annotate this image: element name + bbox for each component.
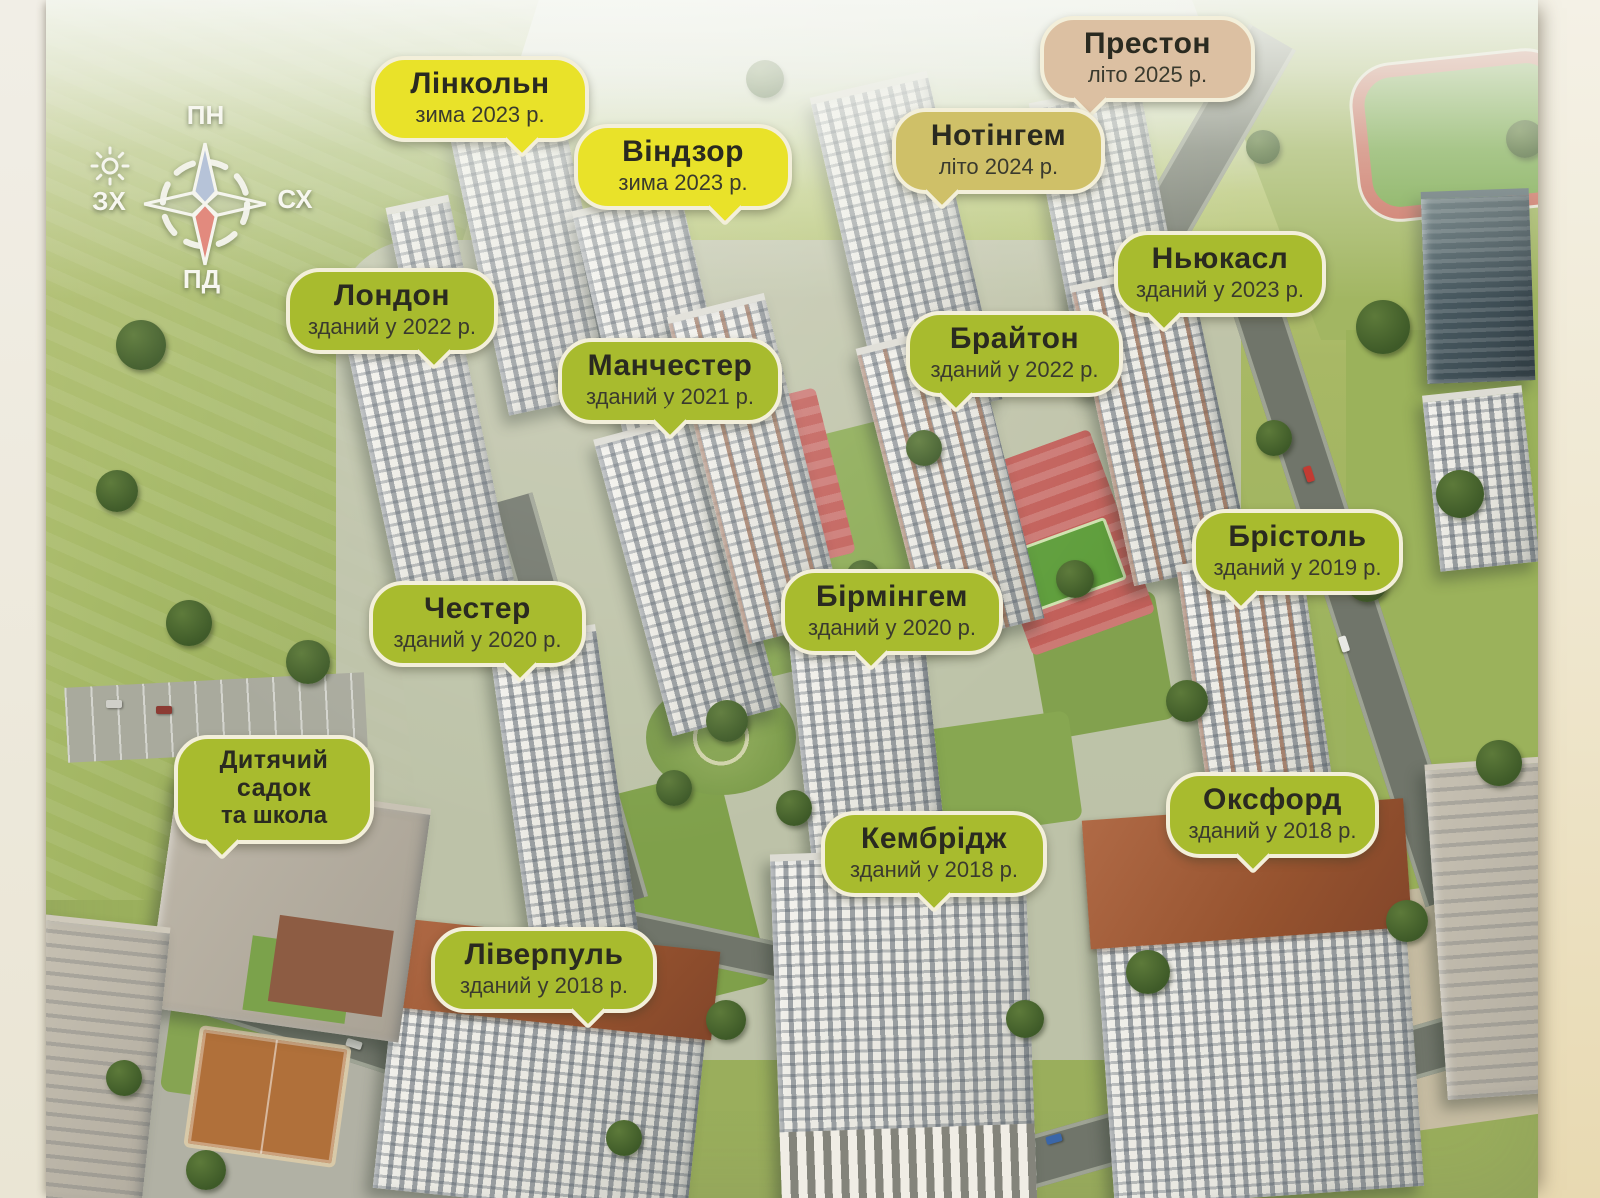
- tree: [186, 1150, 226, 1190]
- completion-date: зданий у 2021 р.: [578, 383, 762, 411]
- tree: [906, 430, 942, 466]
- tree: [166, 600, 212, 646]
- building-name-line2: та школа: [194, 802, 354, 830]
- tree: [1056, 560, 1094, 598]
- building-name: Лінкольн: [391, 67, 569, 101]
- callout-manchester: Манчестер зданий у 2021 р.: [558, 338, 782, 424]
- callout-notingem: Нотінгем літо 2024 р.: [892, 108, 1105, 194]
- car: [106, 700, 122, 708]
- tree: [1356, 300, 1410, 354]
- tree: [706, 1000, 746, 1040]
- tree: [1246, 130, 1280, 164]
- building-name: Ньюкасл: [1134, 242, 1306, 276]
- building-name: Кембрідж: [841, 822, 1027, 856]
- completion-date: зданий у 2020 р.: [801, 614, 983, 642]
- compass-rose: [143, 142, 267, 266]
- compass-south-label: ПД: [159, 264, 244, 295]
- callout-niukasl: Ньюкасл зданий у 2023 р.: [1114, 231, 1326, 317]
- building-name: Лондон: [306, 279, 478, 313]
- callout-linkoln: Лінкольн зима 2023 р.: [371, 56, 589, 142]
- completion-date: зданий у 2018 р.: [451, 972, 637, 1000]
- basketball-court: [183, 1025, 352, 1168]
- callout-kembridzh: Кембрідж зданий у 2018 р.: [821, 811, 1047, 897]
- callout-braiton: Брайтон зданий у 2022 р.: [906, 311, 1123, 397]
- completion-date: зданий у 2018 р.: [1186, 817, 1359, 845]
- tree: [1386, 900, 1428, 942]
- compass-east-label: СХ: [260, 184, 330, 215]
- callout-preston: Престон літо 2025 р.: [1040, 16, 1255, 102]
- tree: [706, 700, 748, 742]
- tree: [1506, 120, 1538, 158]
- callout-chester: Честер зданий у 2020 р.: [369, 581, 586, 667]
- tree: [1166, 680, 1208, 722]
- building-name: Брістоль: [1212, 520, 1383, 554]
- compass-west-point: [144, 193, 205, 215]
- compass-north-label: ПН: [163, 100, 248, 131]
- building-name: Віндзор: [594, 135, 772, 169]
- compass-west-label: ЗХ: [74, 186, 144, 217]
- callout-oksford: Оксфорд зданий у 2018 р.: [1166, 772, 1379, 858]
- paper-edge-right: [1538, 0, 1600, 1198]
- paper-edge-left: [0, 0, 46, 1198]
- completion-date: зданий у 2022 р.: [926, 356, 1103, 384]
- building-kembridzh: [770, 846, 1037, 1198]
- callout-london: Лондон зданий у 2022 р.: [286, 268, 498, 354]
- tree: [1476, 740, 1522, 786]
- tree: [96, 470, 138, 512]
- callout-birmingem: Бірмінгем зданий у 2020 р.: [781, 569, 1003, 655]
- tree: [286, 640, 330, 684]
- completion-date: зима 2023 р.: [594, 169, 772, 197]
- building-glass-tower: [1421, 188, 1536, 384]
- completion-date: літо 2024 р.: [912, 153, 1085, 181]
- tree: [776, 790, 812, 826]
- building: [1422, 385, 1538, 571]
- tree: [116, 320, 166, 370]
- tree: [656, 770, 692, 806]
- tree: [606, 1120, 642, 1156]
- tree: [1436, 470, 1484, 518]
- building-name: Брайтон: [926, 322, 1103, 356]
- callout-vindzor: Віндзор зима 2023 р.: [574, 124, 792, 210]
- completion-date: зданий у 2019 р.: [1212, 554, 1383, 582]
- building-name: Дитячий садок: [194, 746, 354, 802]
- building-name: Ліверпуль: [451, 938, 637, 972]
- tree: [1126, 950, 1170, 994]
- building-name: Оксфорд: [1186, 783, 1359, 817]
- car: [156, 706, 172, 714]
- building-name: Престон: [1060, 27, 1235, 61]
- tree: [106, 1060, 142, 1096]
- sun-icon: [88, 144, 132, 188]
- completion-date: зданий у 2022 р.: [306, 313, 478, 341]
- building-name: Нотінгем: [912, 119, 1085, 153]
- tree: [1256, 420, 1292, 456]
- building-name: Честер: [389, 592, 566, 626]
- completion-date: літо 2025 р.: [1060, 61, 1235, 89]
- callout-bristol: Брістоль зданий у 2019 р.: [1192, 509, 1403, 595]
- building-name: Бірмінгем: [801, 580, 983, 614]
- compass-east-point: [205, 193, 266, 215]
- completion-date: зданий у 2023 р.: [1134, 276, 1306, 304]
- tree: [1006, 1000, 1044, 1038]
- tree: [746, 60, 784, 98]
- building-name: Манчестер: [578, 349, 762, 383]
- callout-liverpul: Ліверпуль зданий у 2018 р.: [431, 927, 657, 1013]
- completion-date: зданий у 2018 р.: [841, 856, 1027, 884]
- completion-date: зима 2023 р.: [391, 101, 569, 129]
- callout-kindergarten-school: Дитячий садок та школа: [174, 735, 374, 844]
- masterplan-photo: ПН ПД ЗХ СХ Лінкольн зима 2023 р. Віндзо…: [46, 0, 1538, 1198]
- completion-date: зданий у 2020 р.: [389, 626, 566, 654]
